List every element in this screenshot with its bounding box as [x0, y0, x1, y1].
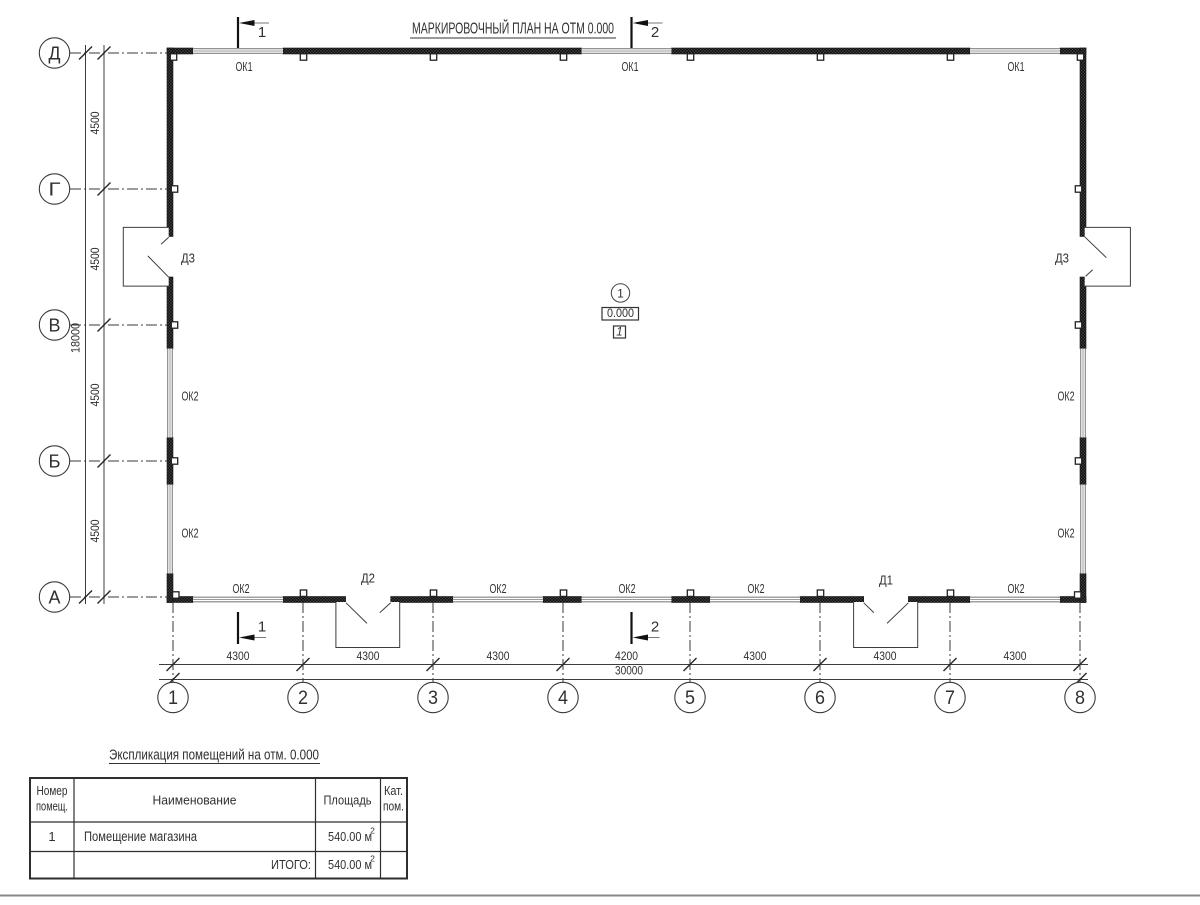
- svg-text:1: 1: [258, 24, 266, 41]
- svg-text:Кат.: Кат.: [384, 783, 403, 798]
- svg-text:Д2: Д2: [361, 571, 375, 586]
- svg-text:Д1: Д1: [879, 573, 893, 588]
- svg-text:4300: 4300: [1004, 651, 1027, 663]
- svg-text:4500: 4500: [90, 384, 102, 407]
- svg-text:А: А: [49, 588, 61, 608]
- svg-text:7: 7: [945, 688, 955, 709]
- svg-text:1: 1: [258, 619, 266, 636]
- svg-text:3: 3: [428, 688, 438, 709]
- svg-text:30000: 30000: [615, 666, 643, 678]
- svg-text:Площадь: Площадь: [324, 793, 372, 808]
- svg-text:ОК1: ОК1: [622, 59, 639, 74]
- svg-text:6: 6: [815, 688, 825, 709]
- svg-text:4300: 4300: [744, 651, 767, 663]
- svg-text:1: 1: [617, 287, 624, 301]
- svg-text:ОК2: ОК2: [748, 581, 765, 596]
- svg-text:Д3: Д3: [181, 251, 195, 266]
- svg-text:МАРКИРОВОЧНЫЙ ПЛАН НА ОТМ 0.00: МАРКИРОВОЧНЫЙ ПЛАН НА ОТМ 0.000: [412, 20, 614, 38]
- svg-text:помещ.: помещ.: [36, 799, 68, 814]
- svg-text:ОК2: ОК2: [1008, 581, 1025, 596]
- svg-text:В: В: [49, 316, 61, 336]
- svg-text:540.00 м: 540.00 м: [328, 829, 372, 844]
- svg-text:4300: 4300: [227, 651, 250, 663]
- svg-text:2: 2: [370, 826, 375, 836]
- svg-text:Помещение магазина: Помещение магазина: [84, 829, 197, 844]
- svg-text:ОК1: ОК1: [1008, 59, 1025, 74]
- svg-text:4500: 4500: [90, 112, 102, 135]
- svg-text:ОК2: ОК2: [1058, 389, 1075, 404]
- svg-text:ОК2: ОК2: [490, 581, 507, 596]
- svg-text:540.00 м: 540.00 м: [328, 857, 372, 872]
- svg-text:18000: 18000: [71, 323, 83, 353]
- svg-text:8: 8: [1075, 688, 1085, 709]
- svg-text:2: 2: [651, 619, 659, 636]
- svg-text:4500: 4500: [90, 520, 102, 543]
- svg-text:Экспликация помещений на отм.: Экспликация помещений на отм. 0.000: [109, 748, 319, 764]
- svg-text:0.000: 0.000: [607, 308, 634, 320]
- svg-text:4200: 4200: [615, 651, 638, 663]
- svg-text:2: 2: [298, 688, 308, 709]
- svg-text:ОК2: ОК2: [233, 581, 250, 596]
- svg-text:Д: Д: [49, 44, 61, 64]
- svg-text:1: 1: [616, 326, 622, 338]
- svg-text:ОК2: ОК2: [619, 581, 636, 596]
- svg-text:2: 2: [651, 24, 659, 41]
- svg-text:4300: 4300: [357, 651, 380, 663]
- svg-text:Б: Б: [49, 452, 61, 472]
- svg-text:1: 1: [168, 688, 178, 709]
- svg-text:ОК2: ОК2: [182, 389, 199, 404]
- svg-text:1: 1: [48, 829, 55, 844]
- svg-text:Г: Г: [49, 180, 61, 200]
- svg-text:ОК2: ОК2: [182, 526, 199, 541]
- svg-text:4: 4: [558, 688, 568, 709]
- svg-text:Номер: Номер: [37, 783, 68, 798]
- svg-text:4300: 4300: [487, 651, 510, 663]
- svg-text:ОК2: ОК2: [1058, 526, 1075, 541]
- svg-text:5: 5: [685, 688, 695, 709]
- svg-text:4300: 4300: [874, 651, 897, 663]
- svg-text:ОК1: ОК1: [236, 59, 253, 74]
- svg-text:4500: 4500: [90, 248, 102, 271]
- svg-text:Наименование: Наименование: [153, 793, 237, 808]
- svg-text:Д3: Д3: [1055, 251, 1069, 266]
- svg-text:пом.: пом.: [383, 799, 404, 814]
- svg-text:ИТОГО:: ИТОГО:: [271, 857, 311, 872]
- svg-text:2: 2: [370, 854, 375, 864]
